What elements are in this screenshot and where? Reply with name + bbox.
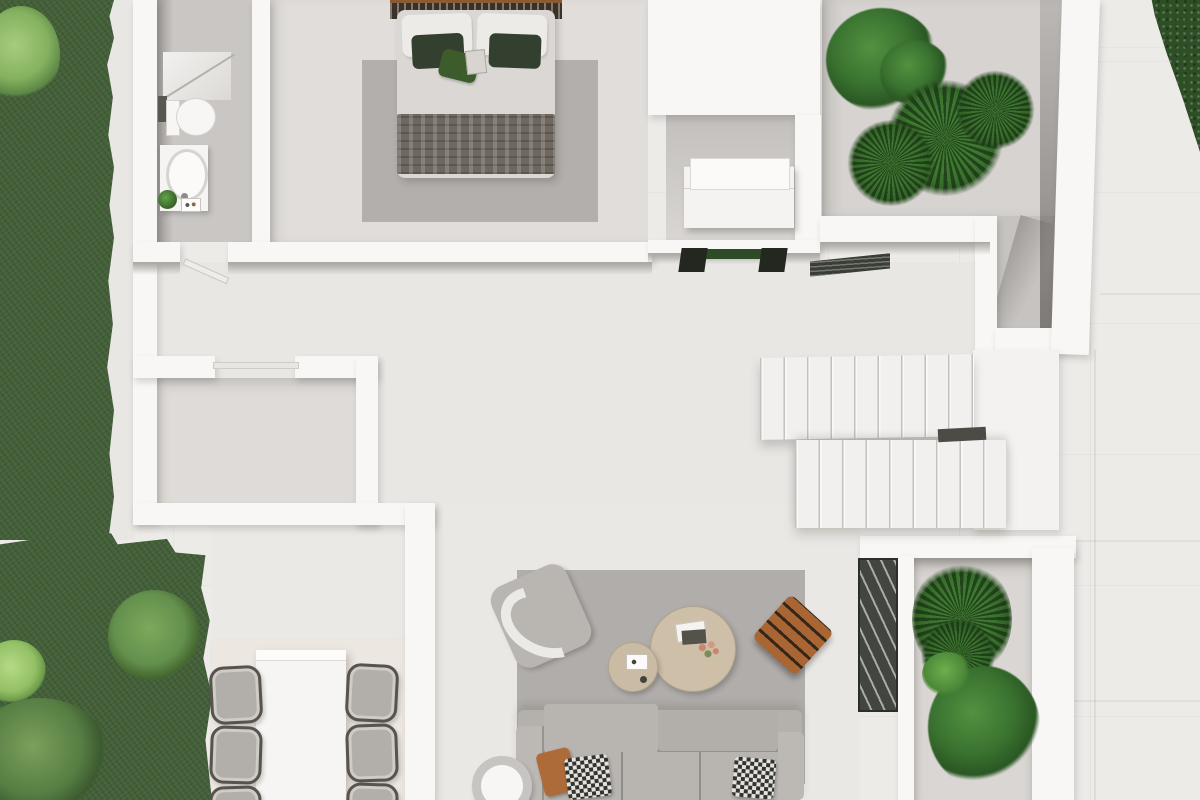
stair-flight-lower (795, 440, 1007, 528)
table-item (640, 676, 647, 683)
wall-storage-east (356, 356, 378, 525)
wall-storage-south (133, 503, 435, 525)
wall-shadow-band (228, 262, 652, 275)
sofa-pillow-checkered (564, 753, 613, 800)
stair-flight-upper (760, 354, 974, 440)
paving-joint (1100, 293, 1200, 295)
dining-chair (345, 723, 399, 783)
dining-chair (209, 725, 263, 785)
dining-table (256, 650, 346, 800)
dining-chair (345, 663, 400, 724)
closet-dresser-top (690, 158, 790, 190)
toilet (176, 98, 216, 136)
wall-entry-west (975, 216, 997, 350)
wall-lower-courtyard-east (1032, 548, 1074, 800)
console-bench-foot (678, 248, 707, 272)
sofa-pillow-checkered (731, 756, 776, 800)
wall-shadow-band (133, 262, 180, 275)
console-bench-foot (758, 248, 787, 272)
wall-closet-north-block (648, 0, 820, 115)
stair-gap-shadow (938, 427, 987, 442)
vanity-tray (181, 198, 201, 212)
dining-chair (209, 785, 263, 800)
wall-terrace-divider (405, 503, 435, 800)
bed-book (465, 49, 487, 75)
storage-sliding-door (213, 362, 299, 369)
coffee-table-large (650, 606, 736, 692)
table-tray (626, 654, 648, 670)
leaf-accent-lower (922, 652, 972, 696)
bed-blanket (397, 114, 555, 174)
courtyard-glass-door (858, 558, 898, 712)
paving-joint (1094, 350, 1096, 800)
fan-palm-upper-low (846, 120, 936, 206)
wall-shadow-band (820, 242, 990, 255)
wall-lower-courtyard-west (898, 556, 914, 800)
dining-chair (209, 665, 264, 726)
dining-table-edge (256, 650, 346, 661)
sofa-armrest-right (776, 732, 804, 800)
wall-upper-courtyard-south (820, 216, 988, 242)
corner-hedge (1118, 0, 1200, 184)
bush-round (108, 590, 200, 682)
wall-bedroom-south-left (133, 242, 180, 262)
wall-closet-east (795, 115, 821, 246)
wall-storage-north-left (133, 356, 215, 378)
flower-vase (694, 638, 722, 662)
wall-bedroom-south (228, 242, 652, 262)
paving-joint (1074, 700, 1200, 702)
dining-chair (345, 782, 399, 800)
storage-room-floor (155, 378, 356, 503)
bed-pillow-green (488, 33, 541, 69)
wall-bathroom-east (252, 0, 270, 246)
fan-palm-upper-right (955, 70, 1035, 150)
vanity-plant (158, 190, 177, 209)
paving-joint (1074, 540, 1200, 542)
sofa-back-cushion-right (658, 712, 778, 754)
floor-plan-canvas (0, 0, 1200, 800)
